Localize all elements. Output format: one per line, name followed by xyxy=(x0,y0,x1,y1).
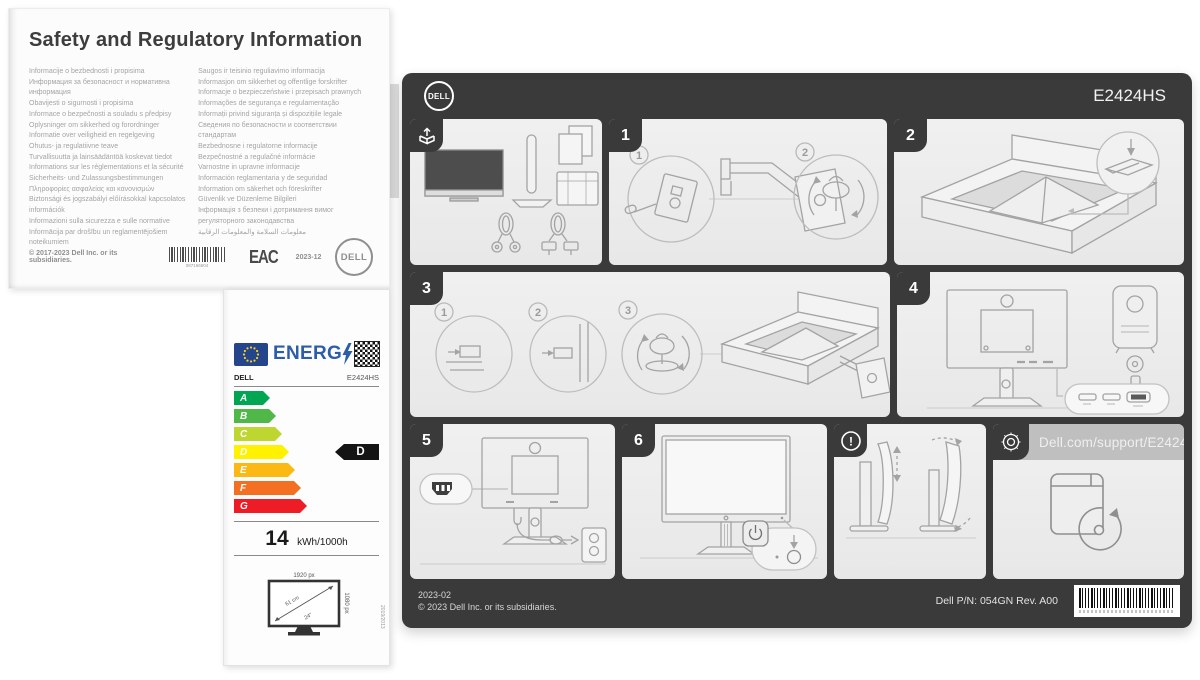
poster-barcode xyxy=(1074,585,1180,617)
barcode-number-strip xyxy=(1079,608,1175,613)
qr-code xyxy=(355,342,379,366)
poster-row-2: 3 1 2 xyxy=(410,272,1184,417)
eac-mark: EAC xyxy=(249,246,278,267)
rating-bar-c: C xyxy=(234,427,282,441)
lightning-bolt-icon xyxy=(342,343,353,365)
safety-sheet-title: Safety and Regulatory Information xyxy=(29,29,369,52)
warning-badge: ! xyxy=(834,424,867,457)
consumption-unit: kWh/1000h xyxy=(297,537,348,548)
step-4-badge: 4 xyxy=(897,272,930,305)
energy-brand: DELL xyxy=(234,373,254,382)
barcode-bars xyxy=(169,247,225,262)
poster-copyright: © 2023 Dell Inc. or its subsidiaries. xyxy=(418,601,557,613)
safety-language-columns: Informacije o bezbednosti i propisima Ин… xyxy=(29,67,369,249)
panel-support: Dell.com/support/E2424HS xyxy=(993,424,1184,579)
rating-bar-d: D xyxy=(234,445,289,459)
barcode-number: 087166604 xyxy=(169,263,225,268)
exclamation-icon: ! xyxy=(840,430,862,452)
poster-footer-left: 2023-02 © 2023 Dell Inc. or its subsidia… xyxy=(418,589,557,613)
step-5-badge: 5 xyxy=(410,424,443,457)
rating-bar-f: F xyxy=(234,481,301,495)
divider xyxy=(234,555,379,556)
poster-grid: 1 1 xyxy=(402,119,1192,579)
monitor-diagonal-icon: 1920 px 61 cm 24" 1080 px xyxy=(244,568,370,648)
dell-logo-text: DELL xyxy=(428,92,450,101)
screen-width-label: 1920 px xyxy=(293,573,314,579)
panel-step-5: 5 xyxy=(410,424,615,579)
barcode-bars xyxy=(1079,588,1175,608)
page: { "colors": { "poster_background": "#3a3… xyxy=(0,0,1200,680)
callout-2: 2 xyxy=(535,307,541,319)
safety-language-column-right: Saugos ir teisinio reguliavimo informaci… xyxy=(198,67,369,249)
safety-language-column-left: Informacije o bezbednosti i propisima Ин… xyxy=(29,67,192,249)
energy-brand-row: DELL E2424HS xyxy=(234,373,379,382)
divider xyxy=(234,386,379,387)
poster-date-code: 2023-02 xyxy=(418,589,557,601)
panel-step-2: 2 xyxy=(894,119,1184,265)
eu-flag-icon xyxy=(234,343,268,366)
unbox-icon-glyph xyxy=(417,126,437,146)
step-3-badge: 3 xyxy=(410,272,443,305)
rating-bar-b: B xyxy=(234,409,276,423)
poster-row-3: 5 xyxy=(410,424,1184,579)
panel-adjust-warning: ! xyxy=(834,424,986,579)
download-guide-illustration xyxy=(993,460,1184,579)
step-1-illustration: 1 2 xyxy=(609,119,887,265)
panel-step-1: 1 1 xyxy=(609,119,887,265)
screen-height-label: 1080 px xyxy=(343,592,349,613)
consumption-value: 14 xyxy=(265,527,288,550)
dell-logo-text: DELL xyxy=(341,252,367,263)
poster-header: DELL E2424HS xyxy=(402,73,1192,119)
energ-wordmark: ENERG xyxy=(273,343,342,365)
dell-logo: DELL xyxy=(424,81,454,111)
poster-part-number: Dell P/N: 054GN Rev. A00 xyxy=(936,595,1058,607)
safety-barcode: 087166604 xyxy=(169,247,225,268)
energy-model: E2424HS xyxy=(347,373,379,382)
panel-step-3: 3 1 2 xyxy=(410,272,890,417)
poster-model: E2424HS xyxy=(1093,86,1166,106)
screen-spec-pictogram: 1920 px 61 cm 24" 1080 px xyxy=(234,568,379,653)
energy-label: ENERG DELL E2424HS ABCDEFGD 14 kWh/1000h… xyxy=(223,289,390,666)
support-url: Dell.com/support/E2424HS xyxy=(1039,435,1184,450)
safety-date-code: 2023-12 xyxy=(296,254,322,261)
energy-consumption: 14 kWh/1000h xyxy=(234,527,379,551)
poster-row-1: 1 1 xyxy=(410,119,1184,265)
dell-logo: DELL xyxy=(335,238,373,276)
gear-icon xyxy=(1000,431,1022,453)
callout-1: 1 xyxy=(441,307,447,319)
step-6-badge: 6 xyxy=(622,424,655,457)
setup-poster: DELL E2424HS xyxy=(402,73,1192,628)
panel-step-4: 4 xyxy=(897,272,1184,417)
callout-2: 2 xyxy=(802,147,808,159)
safety-copyright: © 2017-2023 Dell Inc. or its subsidiarie… xyxy=(29,250,157,264)
callout-1: 1 xyxy=(636,150,642,162)
rating-scale: ABCDEFGD xyxy=(234,391,379,517)
rating-bar-e: E xyxy=(234,463,295,477)
energy-label-header: ENERG xyxy=(234,290,379,366)
panel-step-6: 6 xyxy=(622,424,827,579)
step-1-badge: 1 xyxy=(609,119,642,152)
exclamation-glyph: ! xyxy=(849,434,853,448)
step-2-illustration xyxy=(894,119,1184,265)
panel-box-contents xyxy=(410,119,602,265)
safety-sheet: Safety and Regulatory Information Inform… xyxy=(8,8,390,289)
selected-rating-indicator: D xyxy=(335,444,379,460)
regulation-number: 2019/2013 xyxy=(379,605,385,629)
divider xyxy=(234,521,379,522)
poster-footer: 2023-02 © 2023 Dell Inc. or its subsidia… xyxy=(402,579,1192,621)
rating-bar-a: A xyxy=(234,391,270,405)
energy-label-inner: ENERG DELL E2424HS ABCDEFGD 14 kWh/1000h… xyxy=(224,290,389,665)
step-2-badge: 2 xyxy=(894,119,927,152)
step-3-illustration: 1 2 3 xyxy=(410,272,890,417)
support-badge xyxy=(993,424,1029,460)
rating-bar-g: G xyxy=(234,499,307,513)
unbox-icon xyxy=(410,119,443,152)
safety-sheet-footer: © 2017-2023 Dell Inc. or its subsidiarie… xyxy=(29,234,373,280)
step-4-illustration xyxy=(897,272,1184,417)
callout-3: 3 xyxy=(625,305,631,317)
